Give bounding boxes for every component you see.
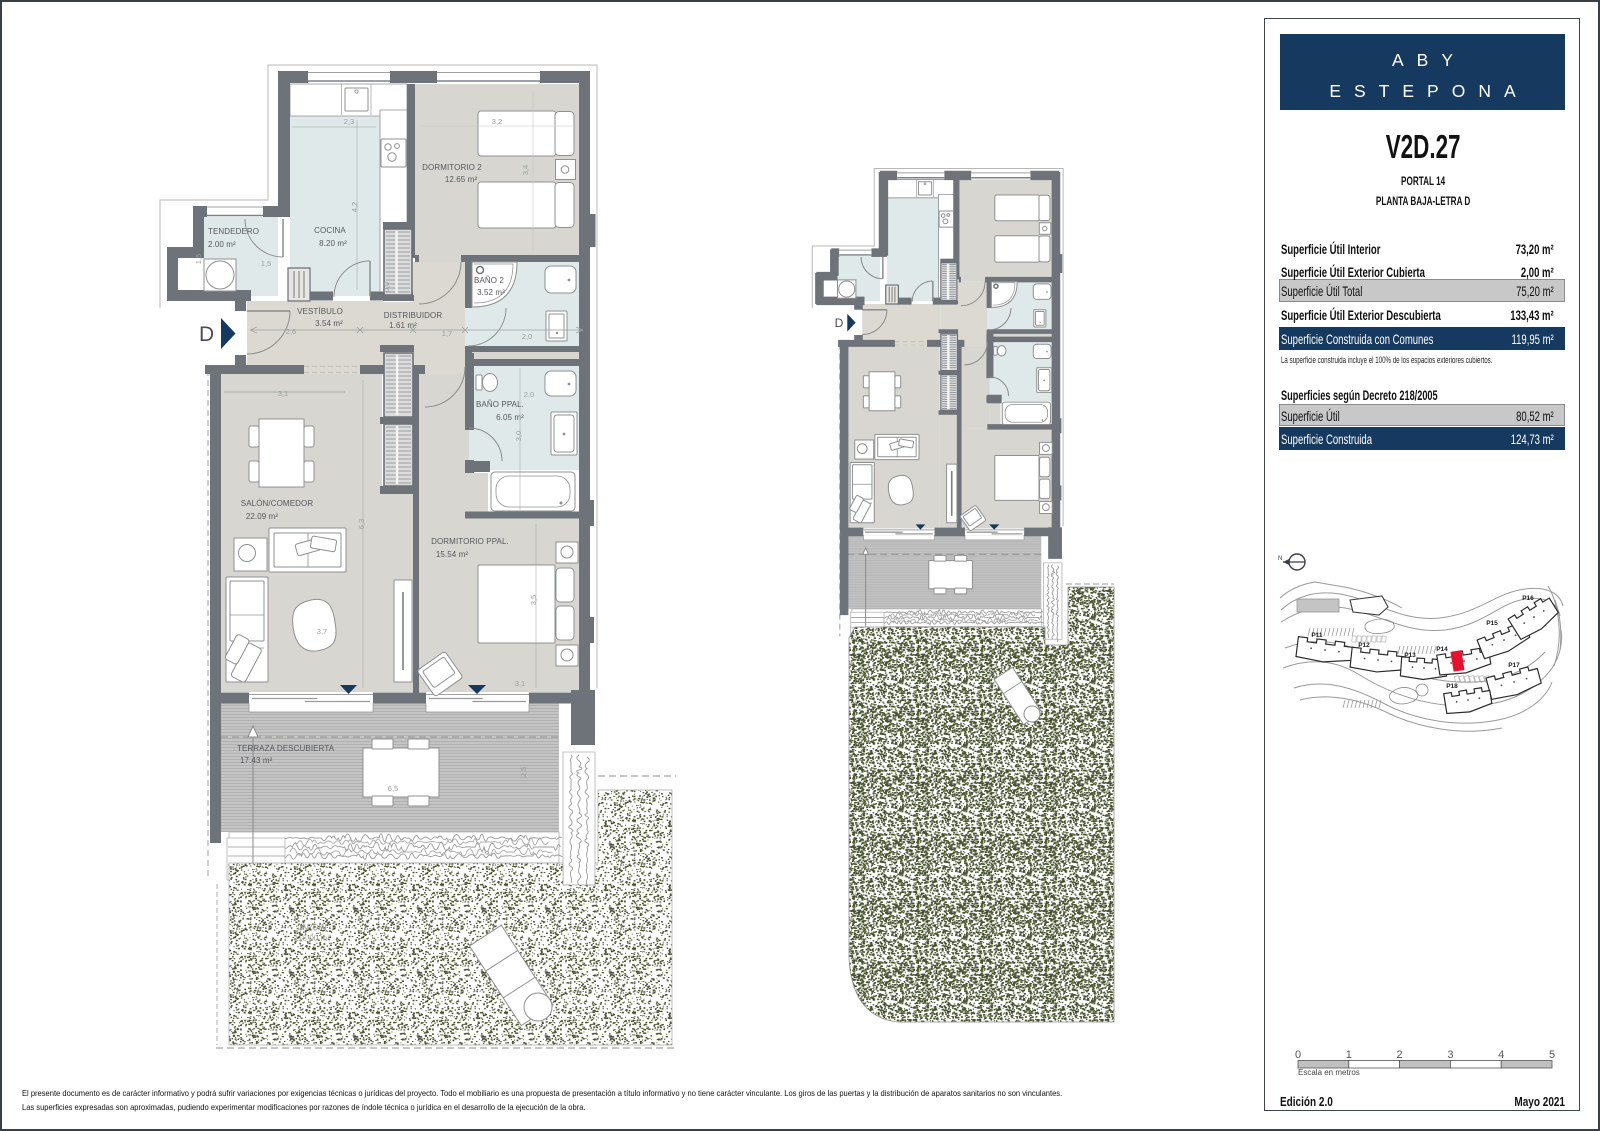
svg-text:3,5: 3,5	[529, 595, 538, 605]
svg-text:D: D	[835, 316, 844, 330]
svg-text:2,3: 2,3	[344, 117, 354, 126]
svg-text:12.65 m²: 12.65 m²	[445, 175, 478, 184]
svg-text:3.52 m²: 3.52 m²	[477, 288, 505, 297]
svg-text:2,0: 2,0	[524, 390, 534, 399]
svg-text:4,2: 4,2	[350, 202, 359, 212]
svg-text:DISTRIBUIDOR: DISTRIBUIDOR	[384, 311, 443, 320]
svg-text:1,5: 1,5	[261, 259, 271, 268]
svg-text:3,1: 3,1	[278, 389, 288, 398]
svg-text:BAÑO 2: BAÑO 2	[474, 276, 504, 285]
svg-text:1.61 m²: 1.61 m²	[389, 321, 417, 330]
svg-text:3,4: 3,4	[521, 165, 530, 175]
svg-text:SALÓN/COMEDOR: SALÓN/COMEDOR	[241, 499, 314, 508]
svg-text:1,5: 1,5	[194, 254, 203, 264]
svg-text:TENDEDERO: TENDEDERO	[208, 227, 259, 236]
svg-text:2,5: 2,5	[519, 767, 528, 777]
svg-text:D: D	[199, 323, 214, 346]
svg-text:VESTÍBULO: VESTÍBULO	[297, 307, 343, 316]
svg-text:15.54 m²: 15.54 m²	[436, 550, 469, 559]
svg-text:DORMITORIO PPAL.: DORMITORIO PPAL.	[431, 537, 509, 546]
svg-text:3,7: 3,7	[317, 627, 327, 636]
svg-text:2,6: 2,6	[286, 327, 296, 336]
svg-text:0,0: 0,0	[382, 282, 391, 292]
svg-text:116,00 m²: 116,00 m²	[294, 934, 331, 943]
svg-text:17.43 m²: 17.43 m²	[240, 756, 273, 765]
svg-text:DORMITORIO 2: DORMITORIO 2	[422, 163, 482, 172]
svg-text:6,3: 6,3	[357, 519, 366, 529]
svg-text:6,5: 6,5	[388, 784, 398, 793]
svg-text:2.00 m²: 2.00 m²	[208, 240, 236, 249]
svg-text:3.54 m²: 3.54 m²	[315, 319, 343, 328]
svg-text:TERRAZA DESCUBIERTA: TERRAZA DESCUBIERTA	[237, 744, 335, 753]
svg-text:3,1: 3,1	[515, 679, 525, 688]
svg-text:COCINA: COCINA	[314, 226, 346, 235]
svg-text:2,0: 2,0	[522, 332, 532, 341]
svg-text:22.09 m²: 22.09 m²	[246, 512, 279, 521]
svg-text:JARDÍN: JARDÍN	[297, 923, 327, 932]
svg-text:8.20 m²: 8.20 m²	[319, 239, 347, 248]
svg-text:3,2: 3,2	[492, 117, 502, 126]
svg-text:BAÑO PPAL.: BAÑO PPAL.	[476, 400, 524, 409]
svg-text:3,0: 3,0	[514, 431, 523, 441]
